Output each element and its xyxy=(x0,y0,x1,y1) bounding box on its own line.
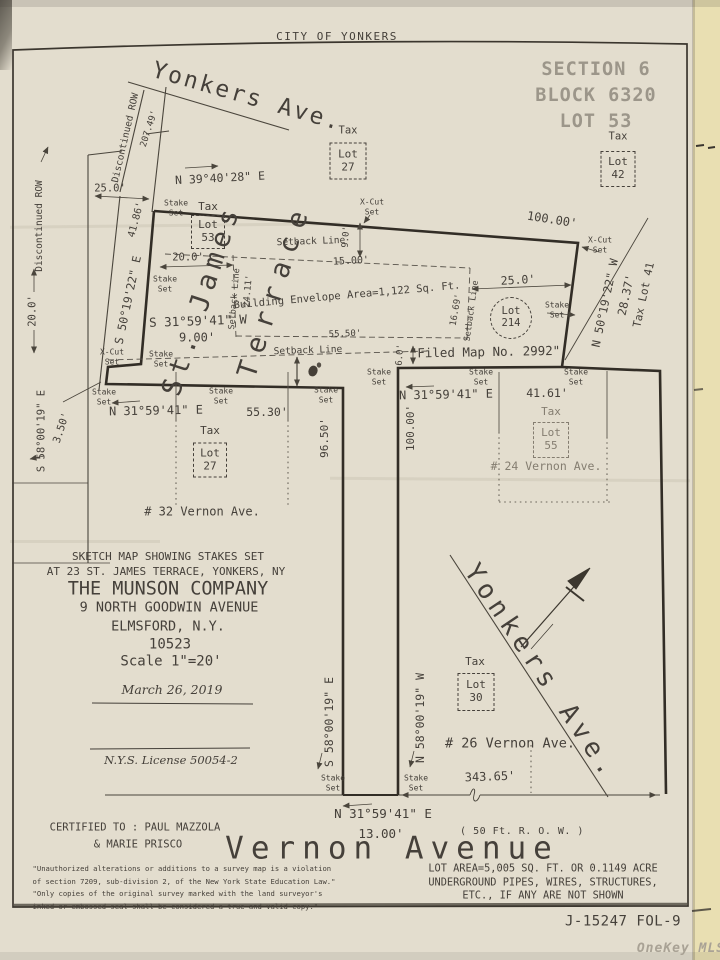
tax-label-27-top: Tax xyxy=(339,124,358,137)
stake-set-west: Stake Set xyxy=(153,274,177,293)
dim-55-50: 55.50' xyxy=(329,329,362,341)
address-32-vernon: # 32 Vernon Ave. xyxy=(144,505,260,520)
stake-set-east: Stake Set xyxy=(545,300,569,319)
dim-9-00: 9.00' xyxy=(179,331,215,346)
disclaimer-note: "Unauthorized alterations or additions t… xyxy=(33,863,336,913)
dim-41-86: 41.86' xyxy=(126,201,147,239)
bearing-s58-e-pole: S 58°00'19" E xyxy=(322,677,336,767)
setback-line-top-label: Setback Line xyxy=(276,235,345,249)
xcut-set-sw: X-Cut Set xyxy=(100,347,124,366)
lot-214-circle: Lot 214 xyxy=(490,297,532,339)
dim-15-00: 15.00' xyxy=(333,255,370,269)
stake-set-nw: Stake Set xyxy=(164,198,188,217)
company-name: THE MUNSON COMPANY xyxy=(68,577,268,600)
dim-96-50: 96.50' xyxy=(318,418,332,458)
nys-license: N.Y.S. License 50054-2 xyxy=(104,753,238,767)
tax-lot-53-box: Lot 53 xyxy=(191,215,225,249)
address-24-vernon: # 24 Vernon Ave. xyxy=(491,459,602,473)
scale-note: Scale 1"=20' xyxy=(120,653,221,671)
stake-set-pole-sw: Stake Set xyxy=(321,773,345,792)
setback-line-right-label: Setback Line xyxy=(462,280,481,342)
company-address: 9 NORTH GOODWIN AVENUE xyxy=(80,600,259,617)
stake-set-24-ne: Stake Set xyxy=(564,367,588,386)
dim-100-00-pole: 100.00' xyxy=(404,405,418,451)
xcut-set-ne: X-Cut Set xyxy=(588,235,612,254)
bearing-n31-e-pole: N 31°59'41" E xyxy=(334,806,432,822)
dim-55-30: 55.30' xyxy=(246,405,288,419)
company-zip: 10523 xyxy=(149,636,191,654)
street-yonkers-ave-top: Yonkers Ave. xyxy=(149,56,345,138)
company-city: ELMSFORD, N.Y. xyxy=(111,619,225,636)
tax-lot-55-box: Lot 55 xyxy=(533,422,569,458)
dim-25-0-east: 25.0' xyxy=(500,272,535,288)
stake-set-pole-se: Stake Set xyxy=(404,773,428,792)
job-number: J-15247 FOL-9 xyxy=(565,913,681,931)
watermark-onekey-mls: OneKey MLS xyxy=(637,941,720,957)
section-block-lot-stamp: SECTION 6 BLOCK 6320 LOT 53 xyxy=(535,57,656,135)
survey-sheet: CITY OF YONKERSYonkers Ave.SECTION 6 BLO… xyxy=(0,0,720,960)
stake-set-sw: Stake Set xyxy=(149,349,173,368)
survey-date: March 26, 2019 xyxy=(122,682,223,698)
dim-frontage-207-49: 207.49' xyxy=(139,109,161,149)
address-26-vernon: # 26 Vernon Ave. xyxy=(445,736,575,753)
stake-set-24-nw: Stake Set xyxy=(469,367,493,386)
certified-to-line-1: CERTIFIED TO : PAUL MAZZOLA xyxy=(50,821,221,834)
xcut-set-top: X-Cut Set xyxy=(360,197,384,216)
bearing-n31-e-32: N 31°59'41" E xyxy=(109,403,203,420)
dim-41-61: 41.61' xyxy=(526,386,568,400)
city-header: CITY OF YONKERS xyxy=(276,30,398,44)
tax-label-42: Tax xyxy=(609,130,628,143)
dim-20-0-row-width: 20.0' xyxy=(26,295,39,327)
dim-3-50: 3.50' xyxy=(51,411,73,445)
dim-20-0-envelope: 20.0' xyxy=(172,251,204,264)
certified-to-line-2: & MARIE PRISCO xyxy=(94,838,183,851)
tax-lot-42-box: Lot 42 xyxy=(601,151,636,187)
discontinued-row-upper: Discontinued ROW xyxy=(110,92,142,184)
tax-label-30: Tax xyxy=(465,655,485,669)
dim-9-0: 9.0' xyxy=(341,226,354,248)
tax-lot-30-box: Lot 30 xyxy=(458,673,495,711)
bearing-n31-e-24: N 31°59'41" E xyxy=(399,387,493,404)
stake-set-32-mid: Stake Set xyxy=(209,386,233,405)
tax-lot-27-lower-box: Lot 27 xyxy=(193,443,227,478)
bearing-st-james-terrace: S 50°19'22" E xyxy=(112,254,145,345)
stake-set-32-ne: Stake Set xyxy=(314,385,338,404)
tax-label-27-lower: Tax xyxy=(200,424,220,438)
bearing-yonkers-frontage: N 39°40'28" E xyxy=(175,168,266,187)
lot-area-note: LOT A­REA=5,005 SQ. FT. OR 0.1149 ACRE U… xyxy=(428,863,657,904)
dim-100-00-ne: 100.00' xyxy=(526,209,578,232)
stake-set-pole-top: Stake Set xyxy=(367,367,391,386)
dim-25-0-top-left: 25.0' xyxy=(94,182,126,195)
dim-16-69: 16.69' xyxy=(449,293,466,327)
tax-label-55: Tax xyxy=(541,405,561,419)
title-line-1: SKETCH MAP SHOWING STAKES SET xyxy=(72,550,264,564)
dim-6-0: 6.0' xyxy=(395,344,408,366)
discontinued-row-left: Discontinued ROW xyxy=(34,180,46,272)
tax-label-53: Tax xyxy=(198,200,218,214)
tax-lot-27-top-box: Lot 27 xyxy=(330,143,367,180)
filed-map-note: "Filed Map No. 2992" xyxy=(410,343,561,361)
tax-lot-41-label: Tax Lot 41 xyxy=(630,261,657,329)
bearing-s58-e-left: S 58°00'19" E xyxy=(35,390,48,472)
setback-line-bottom-label: Setback Line xyxy=(273,344,342,358)
annotation-layer: CITY OF YONKERSYonkers Ave.SECTION 6 BLO… xyxy=(0,0,720,960)
dim-343-65: 343.65' xyxy=(464,769,515,786)
bearing-n58-w-pole: N 58°00'19" W xyxy=(413,673,427,763)
